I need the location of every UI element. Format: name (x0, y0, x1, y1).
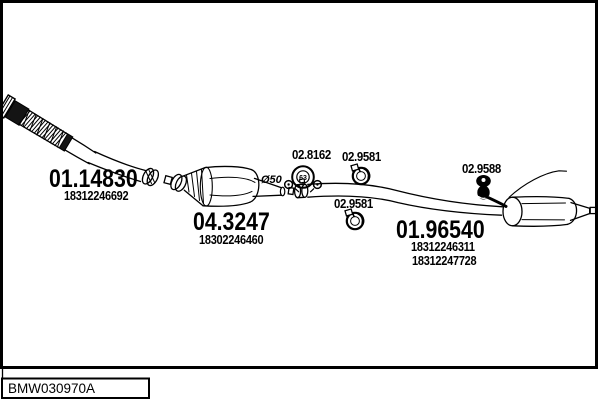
clamp-icon-rear (345, 209, 363, 229)
part-code-catalyst: 04.3247 (193, 210, 270, 235)
part-code-clamp-rear: 02.9581 (334, 197, 373, 210)
rear-silencer-drawing (503, 171, 577, 226)
gasket-size-text: 63 (299, 175, 307, 182)
tailpipe-drawing (571, 203, 596, 221)
part-number-rear-silencer-1: 18312246311 (411, 241, 475, 254)
part-number-front-pipe: 18312246692 (64, 190, 128, 203)
part-code-clamp-front: 02.9581 (342, 150, 381, 163)
rubber-hanger-icon (476, 175, 506, 206)
gasket-icon: 63 (285, 166, 322, 192)
flex-pipe-drawing (0, 95, 98, 168)
part-number-catalyst: 18302246460 (199, 234, 263, 247)
part-number-rear-silencer-2: 18312247728 (412, 255, 476, 268)
catalytic-converter-drawing (183, 166, 259, 206)
pipe-diameter-label: Ø50 (261, 175, 282, 186)
front-flange-joint (140, 167, 189, 193)
part-code-rubber-hanger: 02.9588 (462, 162, 501, 175)
drawing-code-text: BMW030970A (8, 382, 95, 396)
part-code-gasket: 02.8162 (292, 148, 331, 161)
clamp-icon-front (351, 164, 369, 184)
